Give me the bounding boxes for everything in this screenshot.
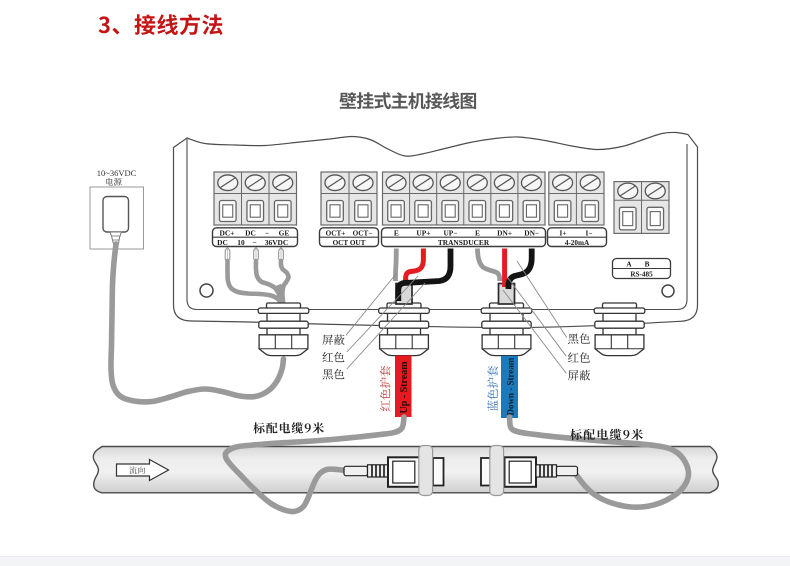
svg-text:36VDC: 36VDC: [265, 238, 288, 247]
svg-text:E: E: [394, 228, 399, 237]
svg-text:10: 10: [237, 238, 245, 247]
svg-text:OCT−: OCT−: [353, 229, 373, 237]
svg-text:GE: GE: [279, 228, 290, 237]
svg-text:A: A: [626, 260, 632, 268]
svg-text:I−: I−: [586, 229, 593, 237]
svg-text:UP+: UP+: [416, 228, 430, 237]
svg-text:Down - Stream: Down - Stream: [505, 357, 515, 415]
svg-text:B: B: [645, 260, 650, 268]
svg-text:DC+: DC+: [220, 228, 235, 237]
svg-text:I+: I+: [560, 229, 567, 237]
svg-text:DN−: DN−: [524, 228, 539, 237]
svg-text:UP−: UP−: [443, 228, 457, 237]
svg-text:DC: DC: [245, 228, 256, 237]
svg-text:RS-485: RS-485: [630, 271, 653, 279]
svg-text:10~36VDC: 10~36VDC: [97, 168, 137, 178]
svg-text:OCT+: OCT+: [326, 229, 346, 237]
svg-text:DC: DC: [217, 238, 228, 247]
svg-text:DN+: DN+: [497, 228, 512, 237]
svg-text:−: −: [252, 238, 256, 247]
svg-text:OCT OUT: OCT OUT: [333, 239, 366, 247]
svg-text:−: −: [265, 228, 269, 237]
svg-text:E: E: [475, 228, 480, 237]
svg-text:Up - Stream: Up - Stream: [399, 361, 410, 414]
svg-text:TRANSDUCER: TRANSDUCER: [438, 238, 490, 247]
svg-text:4-20mA: 4-20mA: [565, 239, 590, 247]
